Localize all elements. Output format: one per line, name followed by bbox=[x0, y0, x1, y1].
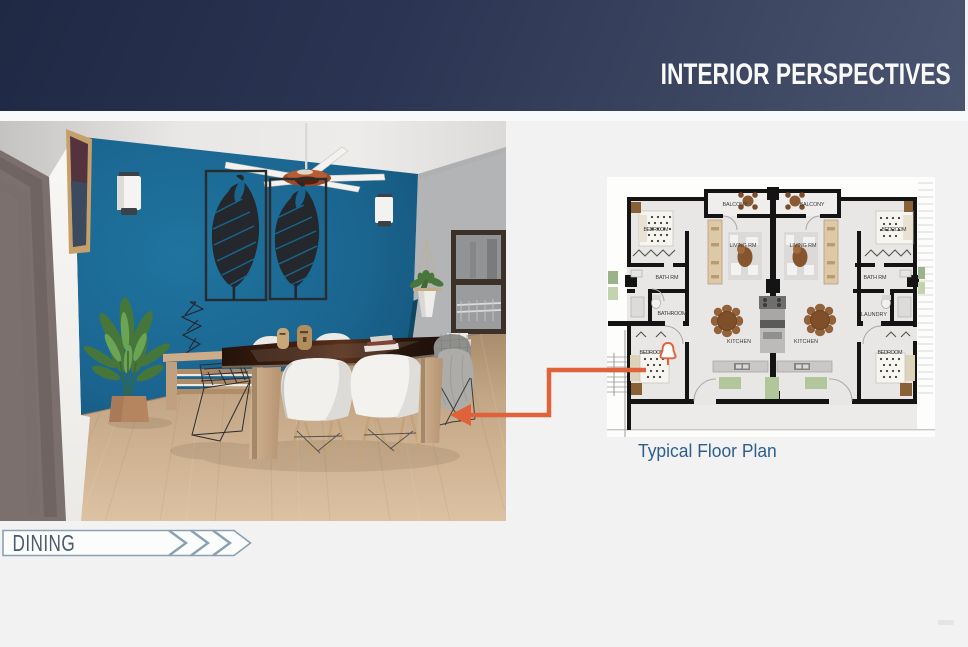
svg-text:BEDROOM: BEDROOM bbox=[878, 350, 904, 356]
svg-text:BEDROOM: BEDROOM bbox=[882, 227, 908, 233]
svg-text:BALCONY: BALCONY bbox=[800, 202, 825, 208]
svg-text:LIVING RM: LIVING RM bbox=[730, 243, 758, 249]
svg-text:BATH RM: BATH RM bbox=[864, 275, 888, 281]
svg-text:LAUNDRY: LAUNDRY bbox=[861, 312, 887, 318]
svg-text:DINING: DINING bbox=[13, 530, 76, 556]
svg-text:KITCHEN: KITCHEN bbox=[727, 339, 751, 345]
svg-text:BATH RM: BATH RM bbox=[656, 275, 680, 281]
svg-text:KITCHEN: KITCHEN bbox=[794, 339, 818, 345]
svg-text:BATHROOM: BATHROOM bbox=[658, 311, 688, 317]
svg-text:LIVING RM: LIVING RM bbox=[790, 243, 818, 249]
svg-text:BALCONY: BALCONY bbox=[723, 202, 748, 208]
svg-text:BEDROOM: BEDROOM bbox=[644, 227, 670, 233]
